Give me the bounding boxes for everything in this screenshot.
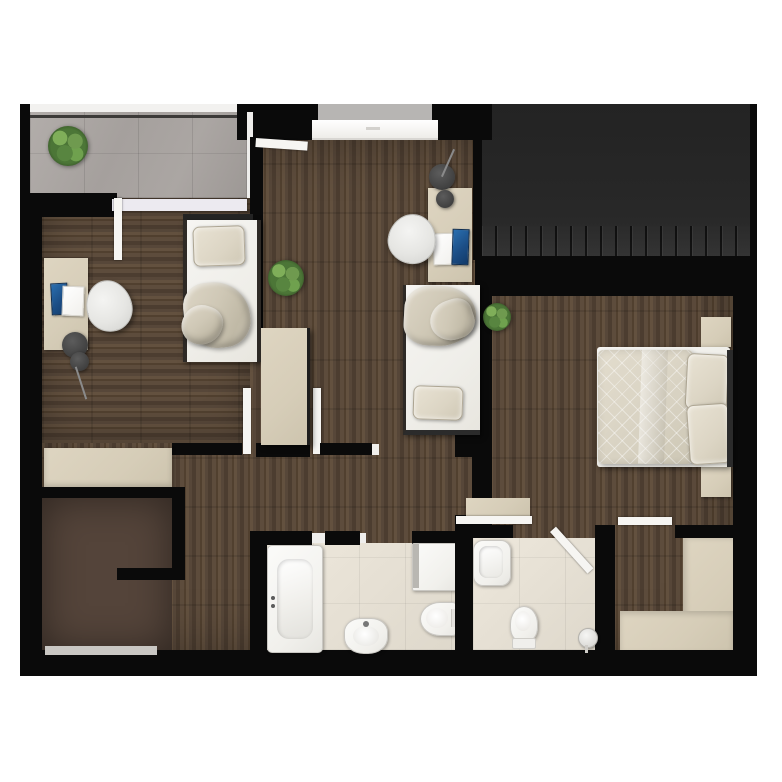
duvet-fold [638,350,668,465]
wardrobe-middle [261,328,310,445]
balcony-sill [27,104,247,112]
washbasin [344,618,388,654]
headboard [727,350,733,467]
bathroom2-wall-east [595,525,615,650]
niche-lintel [456,516,532,524]
laptop-middle-icon [451,229,469,266]
bathroom1-wall-west [250,531,267,650]
outer-wall-left [20,193,42,676]
wall-stair-east [172,487,185,578]
shower-stand-pole [585,645,588,653]
toilet2-tank [512,638,536,649]
top-wall-segment-b [432,104,492,140]
wall-stair-north [42,487,175,498]
floor-plan-canvas [0,0,782,782]
roof-ribbed-edge [480,226,753,258]
shower-tray [412,543,460,591]
bathroom1-door-sill [312,533,325,543]
sideboard [44,448,172,489]
left-room-door-leaf [243,388,251,454]
bathtub-tap-icon [271,596,275,600]
outer-wall-top-left [20,104,30,198]
middle-plant-icon [268,260,304,296]
pillow-left-bed [192,225,245,267]
wall-master-south-stub [675,525,733,538]
nightstand-bottom [701,467,731,497]
small-bathtub [473,540,511,586]
balcony-sliding-door [112,199,247,211]
wall-roof-left-edge [473,104,482,260]
bathtub [267,545,323,653]
bathtub-basin [277,559,313,639]
wall-stair-inner [117,568,185,580]
outer-wall-right [733,256,757,676]
stair-window-sill [45,646,157,655]
washbasin-tap-icon [363,621,369,627]
balcony-door-leaf [114,198,122,260]
bathroom2-wall-north [473,525,513,538]
outer-wall-right-thin [750,104,757,258]
wall-middle-room-south [320,443,372,455]
bathtub-tap-icon [271,604,275,608]
master-door-leaf [618,517,672,525]
toilet2-bowl [515,611,531,631]
french-window-frame [312,120,438,140]
bathroom1-wall-north-b [325,531,360,545]
floor-lamp-middle-base [436,190,454,208]
balcony-plant-icon [48,126,88,166]
pillow-middle-bed [412,385,463,421]
floor-lamp-left-base [70,352,89,371]
toilet-bowl [426,608,448,628]
wall-balcony-divider [27,193,117,217]
wall-under-roof [475,256,757,296]
bathroom1-door-jamb [360,533,366,543]
notebook-left-icon [61,286,84,317]
wall-under-wardrobe [256,443,310,457]
master-pillow-2 [686,403,732,466]
toilet-bathroom2 [510,606,538,642]
wall-left-room-south [172,443,242,455]
door-jamb-hall [372,444,379,455]
built-in-wardrobe-horizontal [620,611,733,650]
toilet-bathroom1 [420,602,460,636]
wall-niche-shelf [466,498,530,516]
shower-stand-icon [578,628,598,648]
washbasin-bowl [353,626,379,646]
shower-glass-edge [413,544,419,588]
balcony-railing [30,115,247,118]
master-plant-icon [483,303,511,331]
window-handle-mark [366,127,380,130]
nightstand-top [701,317,731,347]
small-bathtub-basin [479,546,503,578]
wall-bathroom-divider [455,515,473,650]
bathroom1-wall-north-a [250,531,312,545]
